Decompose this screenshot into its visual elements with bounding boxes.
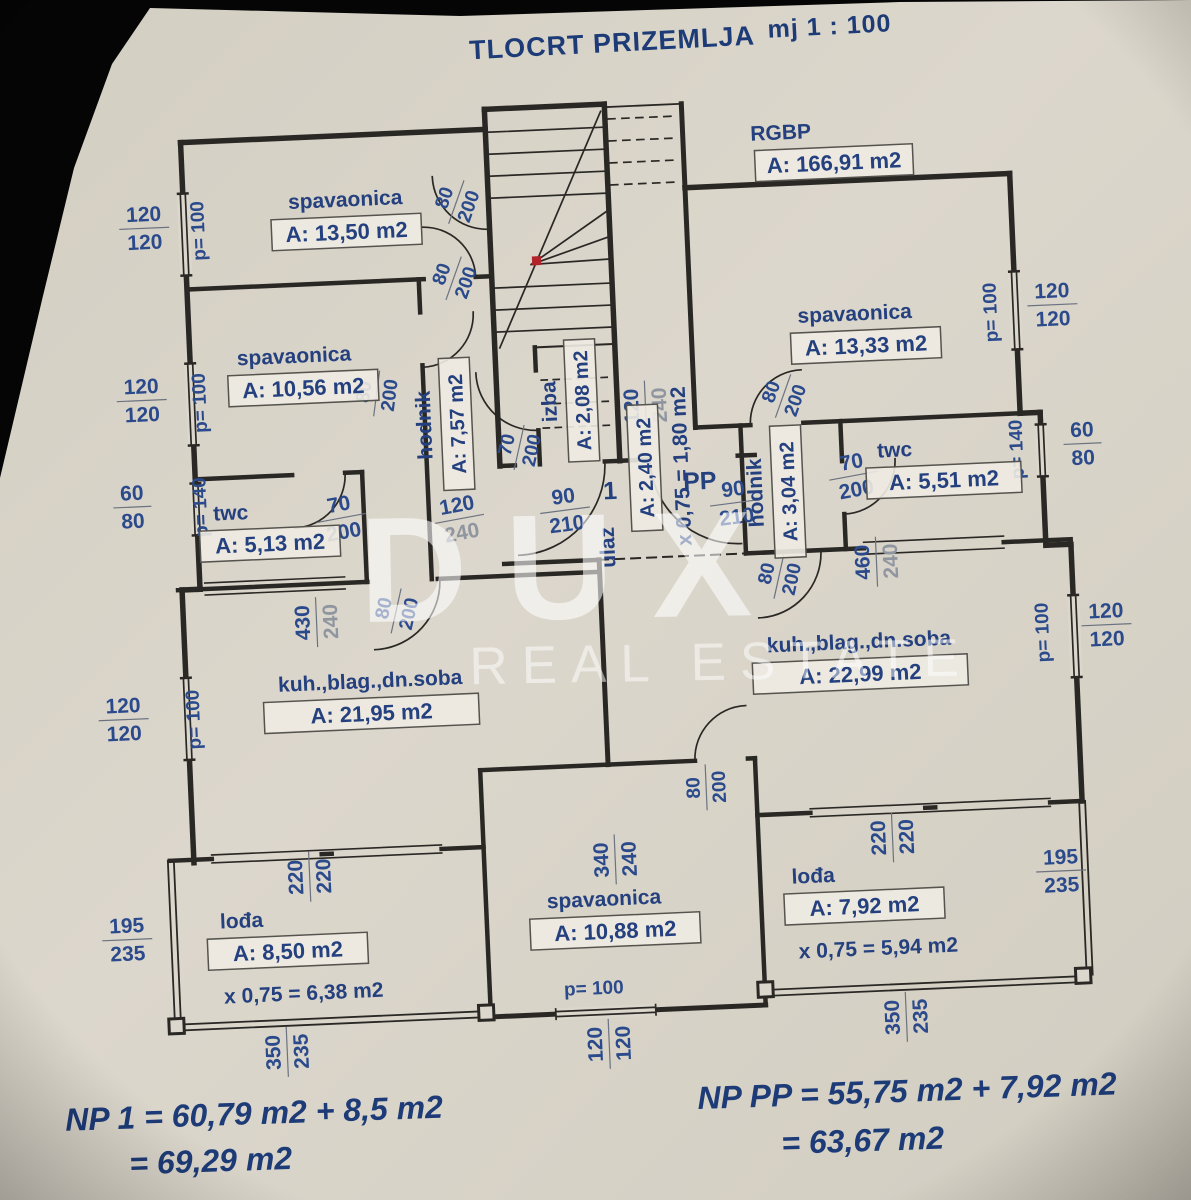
svg-text:120: 120 xyxy=(611,1025,636,1061)
svg-text:220: 220 xyxy=(312,858,337,894)
svg-text:120: 120 xyxy=(584,1026,609,1062)
photo-of-floor-plan: TLOCRT PRIZEMLJA mj 1 : 100 xyxy=(0,0,1191,1200)
svg-text:A: 13,33 m2: A: 13,33 m2 xyxy=(804,330,927,360)
svg-text:120: 120 xyxy=(105,694,141,719)
svg-text:240: 240 xyxy=(879,543,904,579)
svg-text:80: 80 xyxy=(121,510,145,534)
dimension-label: p= 100 xyxy=(182,689,206,750)
svg-text:235: 235 xyxy=(909,998,934,1034)
svg-text:lođa: lođa xyxy=(219,909,263,934)
svg-text:120: 120 xyxy=(123,375,159,400)
svg-text:p= 100: p= 100 xyxy=(182,689,206,750)
svg-text:200: 200 xyxy=(709,770,731,803)
svg-text:hodnik: hodnik xyxy=(412,390,438,460)
svg-text:120: 120 xyxy=(1089,627,1125,652)
svg-text:235: 235 xyxy=(110,942,146,967)
svg-text:350: 350 xyxy=(262,1034,287,1070)
svg-text:120: 120 xyxy=(126,203,162,228)
watermark-subtitle: REAL ESTATE xyxy=(469,628,973,696)
svg-text:120: 120 xyxy=(1035,307,1071,332)
svg-text:p= 100: p= 100 xyxy=(1031,602,1055,663)
svg-text:p= 140: p= 140 xyxy=(189,477,213,538)
svg-text:460: 460 xyxy=(851,544,876,580)
svg-text:120: 120 xyxy=(127,231,163,256)
svg-text:A: 5,51 m2: A: 5,51 m2 xyxy=(888,465,999,495)
svg-text:A: 8,50 m2: A: 8,50 m2 xyxy=(232,936,343,966)
svg-text:twc: twc xyxy=(877,438,913,463)
svg-text:A: 7,92 m2: A: 7,92 m2 xyxy=(809,891,920,921)
svg-text:120: 120 xyxy=(1034,279,1070,304)
svg-text:240: 240 xyxy=(319,604,344,640)
svg-text:220: 220 xyxy=(284,859,309,895)
svg-text:p= 100: p= 100 xyxy=(564,977,625,1001)
dimension-label: p= 100 xyxy=(564,977,625,1001)
svg-text:RGBP: RGBP xyxy=(750,120,812,146)
svg-text:A: 21,95 m2: A: 21,95 m2 xyxy=(310,698,433,728)
svg-text:80: 80 xyxy=(683,777,705,799)
svg-text:A: 10,88 m2: A: 10,88 m2 xyxy=(554,916,677,946)
svg-text:twc: twc xyxy=(213,501,249,526)
dimension-label: p= 140 xyxy=(189,477,213,538)
svg-text:p= 100: p= 100 xyxy=(187,201,211,262)
svg-text:70: 70 xyxy=(838,449,865,476)
svg-text:220: 220 xyxy=(895,819,920,855)
svg-text:235: 235 xyxy=(1044,873,1080,898)
dimension-label: p= 100 xyxy=(979,282,1003,343)
svg-text:60: 60 xyxy=(1070,418,1094,442)
svg-text:220: 220 xyxy=(867,820,892,856)
np1-line2: = 69,29 m2 xyxy=(129,1140,293,1182)
dimension-label: p= 100 xyxy=(1031,602,1055,663)
watermark-brand: DUX xyxy=(358,479,792,654)
svg-text:60: 60 xyxy=(120,482,144,506)
nppp-line2: = 63,67 m2 xyxy=(781,1119,945,1161)
stair-direction-marker xyxy=(532,256,541,265)
floor-plan-drawing: TLOCRT PRIZEMLJA mj 1 : 100 xyxy=(0,0,1191,1200)
svg-text:120: 120 xyxy=(124,403,160,428)
svg-text:A: 5,13 m2: A: 5,13 m2 xyxy=(215,529,326,559)
svg-text:235: 235 xyxy=(290,1033,315,1069)
svg-text:240: 240 xyxy=(617,841,642,877)
svg-text:A: 13,50 m2: A: 13,50 m2 xyxy=(285,217,408,247)
svg-text:izba: izba xyxy=(537,381,562,423)
svg-text:p= 100: p= 100 xyxy=(979,282,1003,343)
dimension-label: p= 100 xyxy=(189,373,213,434)
svg-text:120: 120 xyxy=(1088,599,1124,624)
svg-text:195: 195 xyxy=(1043,845,1079,870)
window-icon xyxy=(1035,424,1049,476)
svg-text:p= 100: p= 100 xyxy=(189,373,213,434)
svg-text:200: 200 xyxy=(378,378,403,413)
svg-text:A: 2,08 m2: A: 2,08 m2 xyxy=(570,350,596,451)
svg-text:lođa: lođa xyxy=(791,864,835,889)
svg-text:A: 7,57 m2: A: 7,57 m2 xyxy=(445,373,471,474)
svg-text:120: 120 xyxy=(106,722,142,747)
svg-text:430: 430 xyxy=(291,605,316,641)
svg-text:A: 10,56 m2: A: 10,56 m2 xyxy=(242,373,365,403)
dimension-label: p= 100 xyxy=(187,201,211,262)
svg-text:195: 195 xyxy=(109,914,145,939)
svg-text:340: 340 xyxy=(589,842,614,878)
svg-text:80: 80 xyxy=(1071,446,1095,470)
svg-text:70: 70 xyxy=(325,491,352,518)
svg-text:350: 350 xyxy=(881,999,906,1035)
